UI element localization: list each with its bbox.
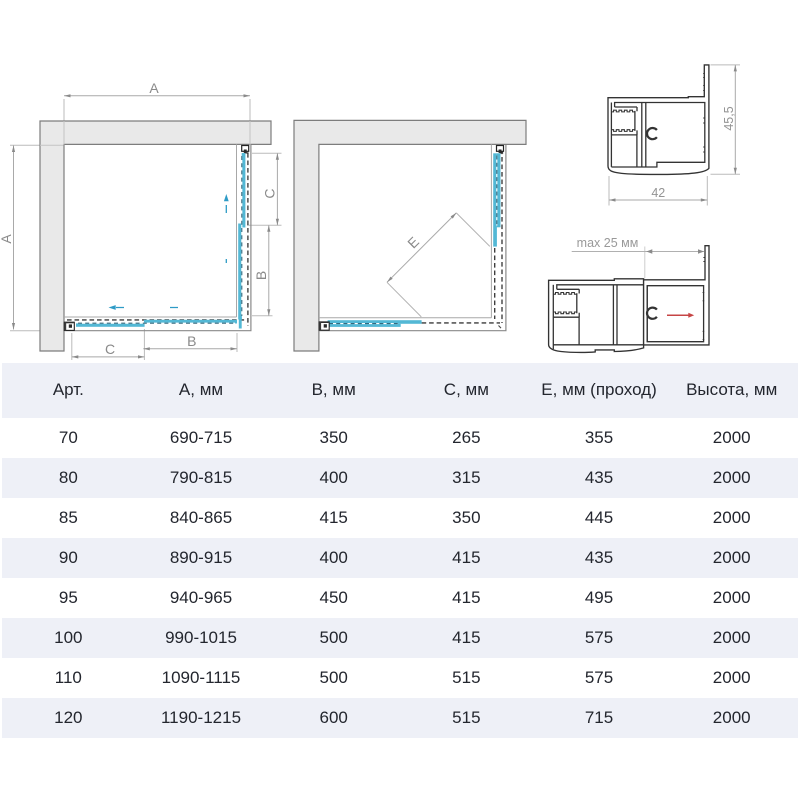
svg-text:A: A [149,80,159,96]
svg-text:E: E [404,234,422,252]
svg-text:max 25 мм: max 25 мм [577,236,639,250]
svg-text:42: 42 [651,186,665,200]
svg-text:C: C [105,341,115,357]
svg-text:B: B [253,271,269,280]
svg-text:45,5: 45,5 [722,106,736,130]
svg-text:A: A [0,234,14,244]
svg-text:B: B [187,333,196,349]
svg-text:C: C [262,188,278,198]
